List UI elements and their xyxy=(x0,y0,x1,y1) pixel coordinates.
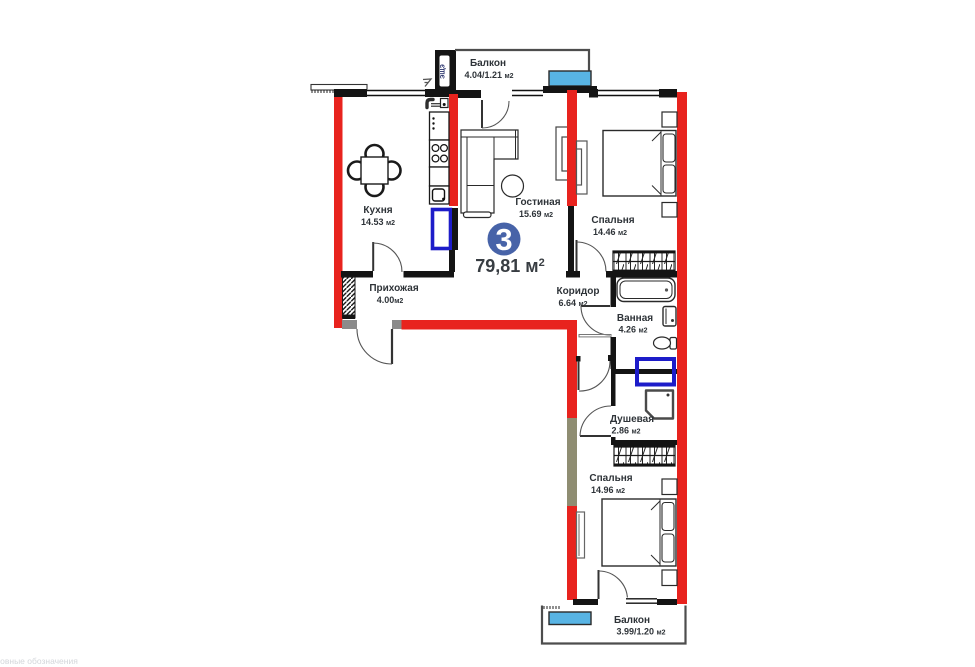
svg-text:Коридор: Коридор xyxy=(556,286,599,297)
svg-text:14.53 м2: 14.53 м2 xyxy=(361,217,395,227)
svg-text:Балкон: Балкон xyxy=(470,58,506,69)
svg-text:Кухня: Кухня xyxy=(363,205,392,216)
svg-text:79,81 м2: 79,81 м2 xyxy=(475,256,545,276)
svg-text:Душевая: Душевая xyxy=(610,414,654,425)
svg-text:14.96 м2: 14.96 м2 xyxy=(591,485,625,495)
svg-text:Прихожая: Прихожая xyxy=(369,283,419,294)
svg-text:Ванная: Ванная xyxy=(617,313,653,324)
svg-text:15.69 м2: 15.69 м2 xyxy=(519,209,553,219)
svg-text:4.04/1.21 м2: 4.04/1.21 м2 xyxy=(464,70,513,80)
svg-text:3.99/1.20 м2: 3.99/1.20 м2 xyxy=(616,627,665,637)
svg-text:Гостиная: Гостиная xyxy=(515,197,560,208)
svg-text:2.86 м2: 2.86 м2 xyxy=(611,426,640,436)
svg-text:Спальня: Спальня xyxy=(589,473,632,484)
svg-text:4.26 м2: 4.26 м2 xyxy=(618,325,647,335)
svg-text:Условные обозначения: Условные обозначения xyxy=(0,656,78,666)
svg-text:4.00м2: 4.00м2 xyxy=(377,295,404,305)
svg-text:Спальня: Спальня xyxy=(591,215,634,226)
svg-text:Балкон: Балкон xyxy=(614,615,650,626)
svg-text:ЭЩЭ: ЭЩЭ xyxy=(441,63,447,78)
svg-text:14.46 м2: 14.46 м2 xyxy=(593,227,627,237)
svg-text:3: 3 xyxy=(495,222,512,257)
